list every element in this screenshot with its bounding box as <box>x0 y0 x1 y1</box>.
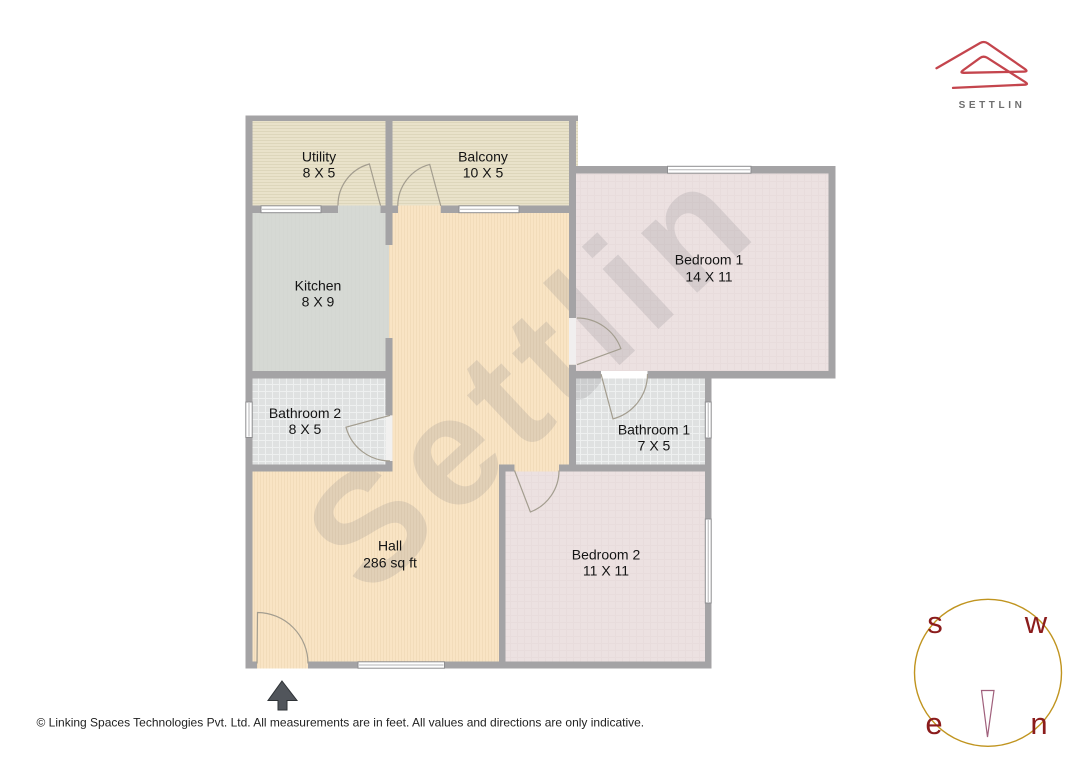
svg-text:10 X 5: 10 X 5 <box>463 165 504 181</box>
svg-text:Bedroom 1: Bedroom 1 <box>675 252 744 268</box>
svg-text:7 X 5: 7 X 5 <box>638 438 671 454</box>
svg-text:11 X 11: 11 X 11 <box>583 563 629 579</box>
svg-text:Bathroom 2: Bathroom 2 <box>269 405 342 421</box>
svg-text:© Linking Spaces Technologies: © Linking Spaces Technologies Pvt. Ltd. … <box>37 716 645 730</box>
svg-text:Bathroom 1: Bathroom 1 <box>618 422 691 438</box>
svg-text:8 X 5: 8 X 5 <box>289 421 322 437</box>
svg-text:Utility: Utility <box>302 149 336 165</box>
svg-text:8 X 9: 8 X 9 <box>302 294 335 310</box>
svg-text:e: e <box>925 706 942 741</box>
svg-text:s: s <box>927 605 943 640</box>
svg-text:Balcony: Balcony <box>458 149 508 165</box>
svg-text:Bedroom 2: Bedroom 2 <box>572 547 641 563</box>
svg-text:w: w <box>1024 605 1048 640</box>
svg-text:286 sq ft: 286 sq ft <box>363 555 417 571</box>
svg-text:Kitchen: Kitchen <box>295 278 342 294</box>
svg-text:SETTLIN: SETTLIN <box>959 100 1026 111</box>
svg-text:Hall: Hall <box>378 538 402 554</box>
svg-text:n: n <box>1030 706 1047 741</box>
svg-text:8 X 5: 8 X 5 <box>303 165 336 181</box>
svg-text:14 X 11: 14 X 11 <box>685 269 732 285</box>
